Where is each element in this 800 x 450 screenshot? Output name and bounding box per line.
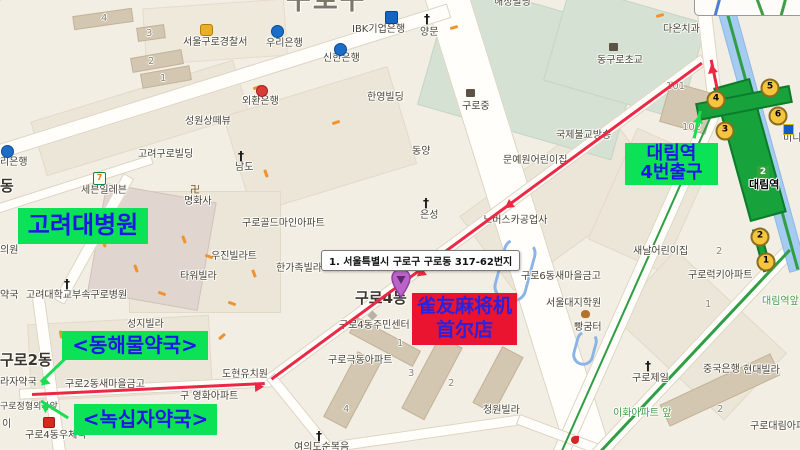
shop-box-mahjong: 雀友麻将机 首尔店 [412, 293, 517, 345]
map-label: 대림역앞 [762, 296, 799, 307]
apartment-slab [472, 346, 523, 414]
subway-line2-badge: 2 [757, 166, 769, 178]
highlight-box-station-exit: 대림역 4번출구 [625, 143, 718, 185]
station-name-label: 대림역 [749, 179, 779, 191]
bankr-icon [256, 85, 268, 97]
shop-box-line2: 首尔店 [436, 319, 493, 343]
map-inset-box [694, 0, 800, 16]
map-label: 동 [0, 178, 14, 195]
apartment-block [72, 8, 133, 30]
oneway-arrow-mark [218, 333, 226, 340]
building-number: 2 [716, 246, 722, 257]
route-arrowhead [255, 382, 264, 392]
highlight-box-hospital: 고려대병원 [18, 208, 148, 244]
cross-icon: † [645, 361, 651, 371]
shop-box-line1: 雀友麻将机 [417, 295, 512, 319]
map-label: 은성 [420, 210, 438, 221]
inset-green-line [779, 0, 789, 16]
mstop-icon [783, 124, 794, 135]
map-label: 구로구 [286, 0, 367, 16]
station-exit-line2: 4번출구 [640, 164, 702, 183]
inset-blue-line [713, 0, 723, 16]
subway-exit-6: 6 [769, 107, 788, 126]
building-number: 3 [408, 368, 414, 379]
cross-icon: † [423, 198, 429, 208]
map-label: 한가족빌라 [276, 263, 322, 274]
residential-block [0, 0, 1, 1]
map-canvas[interactable]: 2 대림역 구로구구로4동구로2동동서울구로경찰서우리은행신한은행IBK기업은행… [0, 0, 800, 450]
map-label: 미니스톱 [783, 133, 800, 144]
bakery-icon [581, 310, 590, 318]
inset-green-line [752, 0, 764, 16]
apartment-slab [323, 351, 381, 429]
oneway-arrow-mark [253, 85, 262, 91]
daerim-station-stub [752, 228, 772, 273]
map-label: 리은행 [0, 157, 28, 168]
destination-marker-pin[interactable] [390, 268, 412, 298]
map-label: 구로대림아파트 [750, 421, 800, 432]
building-number: 2 [448, 378, 454, 389]
map-label: 의원 [0, 245, 18, 256]
address-tooltip: 1. 서울특별시 구로구 구로동 317-62번지 [321, 250, 520, 271]
map-label: 이 [2, 419, 11, 430]
map-label: 약국 [0, 290, 18, 301]
highlight-box-pharmacy-donghaemul: <동해물약국> [62, 331, 208, 360]
highlight-box-pharmacy-noksipja: <녹십자약국> [74, 404, 217, 435]
